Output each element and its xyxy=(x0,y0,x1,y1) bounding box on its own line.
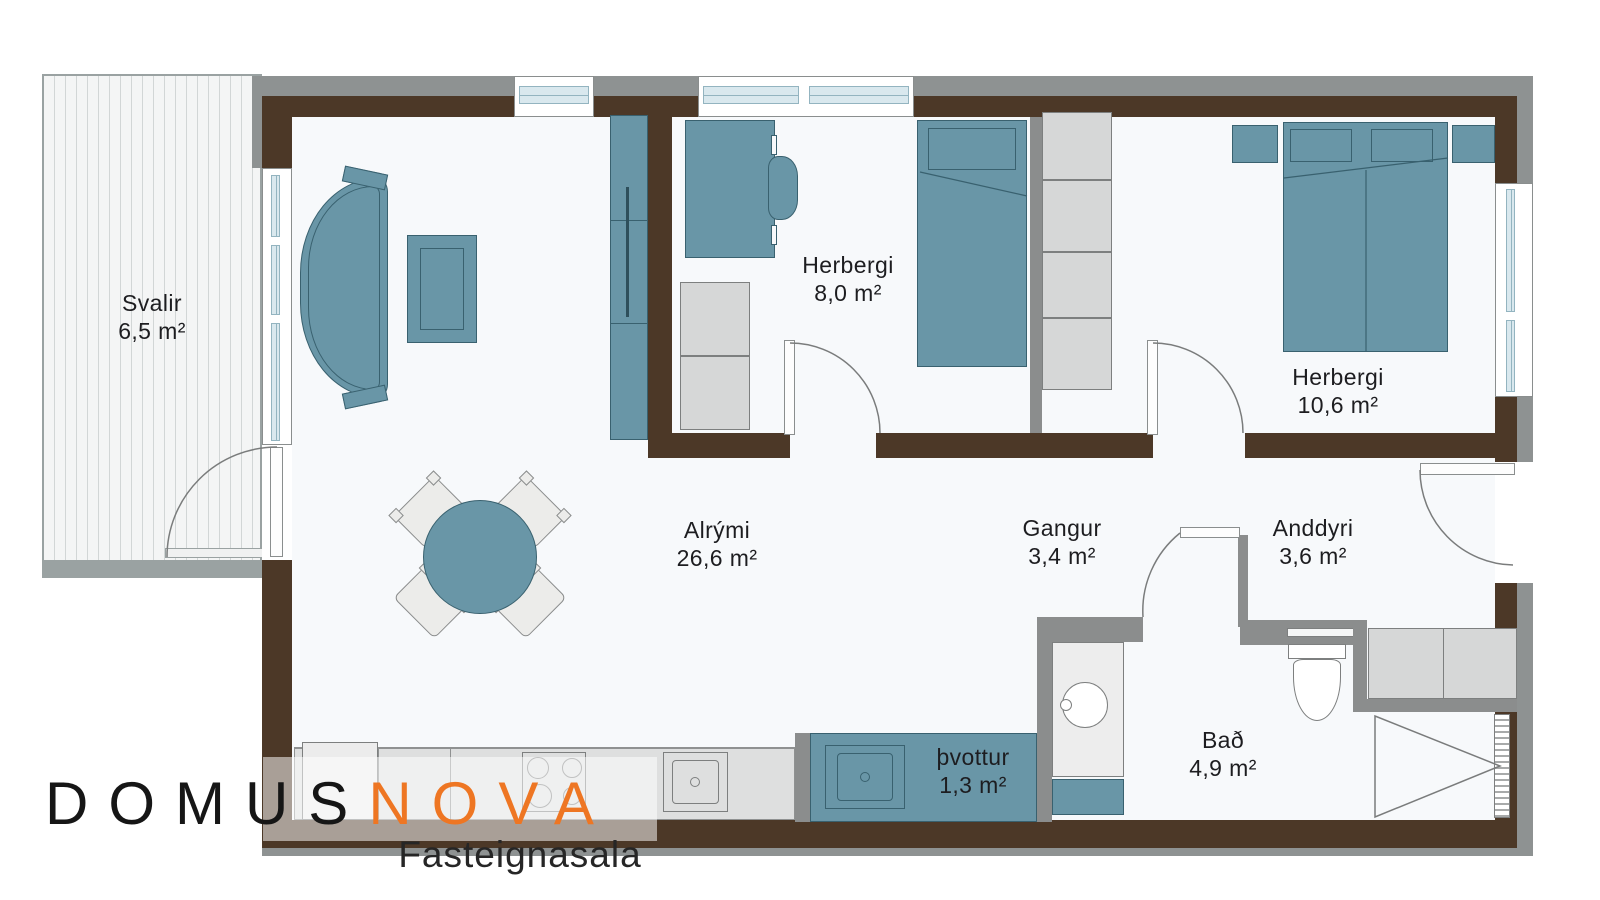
room-label-alrymi: Alrými 26,6 m² xyxy=(627,516,807,572)
balcony-edge xyxy=(42,562,292,578)
washbasin-faucet xyxy=(1060,699,1072,711)
brand-tagline: Fasteignasala xyxy=(385,834,655,876)
closet-icon xyxy=(1042,252,1112,318)
room-label-herbergi-large: Herbergi 10,6 m² xyxy=(1248,363,1428,419)
room-name: Anddyri xyxy=(1223,514,1403,542)
wall-laundry-left xyxy=(795,733,810,822)
window-icon xyxy=(1495,183,1533,397)
room-label-bad: Bað 4,9 m² xyxy=(1133,726,1313,782)
sink-drain xyxy=(690,777,700,787)
cabinet-icon xyxy=(680,282,750,356)
bedroom2-door-icon xyxy=(1147,340,1158,435)
pillow xyxy=(928,128,1016,170)
coffee-table-icon xyxy=(407,235,477,343)
balcony-door-icon xyxy=(270,447,283,557)
floor-plan: Svalir 6,5 m² Herbergi 8,0 m² Herbergi 1… xyxy=(0,0,1600,900)
closet-icon xyxy=(1042,112,1112,180)
closet-icon xyxy=(1042,318,1112,390)
room-name: Gangur xyxy=(972,514,1152,542)
cabinet-icon xyxy=(680,356,750,430)
wall-bedrooms-b xyxy=(876,433,1153,458)
room-area: 26,6 m² xyxy=(627,544,807,572)
room-area: 3,4 m² xyxy=(972,542,1152,570)
tall-cabinet-divider xyxy=(610,220,648,221)
room-area: 4,9 m² xyxy=(1133,754,1313,782)
window-icon xyxy=(698,76,914,117)
desk-detail xyxy=(771,225,777,245)
room-label-anddyri: Anddyri 3,6 m² xyxy=(1223,514,1403,570)
room-name: Bað xyxy=(1133,726,1313,754)
room-label-herbergi-small: Herbergi 8,0 m² xyxy=(758,251,938,307)
entry-door-icon xyxy=(1420,463,1515,475)
window-icon xyxy=(262,168,292,445)
wall-anddyri-bath xyxy=(1360,699,1517,712)
outer-edge-left xyxy=(252,76,262,168)
balcony-door-threshold xyxy=(165,548,269,558)
wall-right-upper xyxy=(1495,96,1517,183)
room-name: Alrými xyxy=(627,516,807,544)
brand-logo: DOMUSNOVA xyxy=(45,776,614,832)
room-name: þvottur xyxy=(883,743,1063,771)
toilet-cistern xyxy=(1288,644,1346,659)
pillow xyxy=(1290,129,1352,162)
room-name: Svalir xyxy=(62,289,242,317)
cabinet-handle xyxy=(626,187,629,317)
wall-bath-top-left xyxy=(1037,617,1143,642)
wall-bedrooms-c xyxy=(1245,433,1517,458)
tall-cabinet-icon xyxy=(610,115,648,440)
pillow xyxy=(1371,129,1433,162)
nightstand-icon xyxy=(1452,125,1495,163)
desk-chair-icon xyxy=(768,156,798,220)
desk-detail xyxy=(771,135,777,155)
toilet-shelf xyxy=(1287,628,1357,637)
closet-icon xyxy=(1042,180,1112,252)
window-icon xyxy=(514,76,594,117)
brand-nova: NOVA xyxy=(368,770,614,837)
laundry-sink-drain xyxy=(860,772,870,782)
room-name: Herbergi xyxy=(1248,363,1428,391)
wall-livingroom-bedroom1 xyxy=(648,117,672,458)
room-area: 1,3 m² xyxy=(883,771,1063,799)
room-name: Herbergi xyxy=(758,251,938,279)
desk-icon xyxy=(685,120,775,258)
room-area: 8,0 m² xyxy=(758,279,938,307)
entry-door-opening xyxy=(1495,462,1533,583)
nightstand-icon xyxy=(1232,125,1278,163)
wall-bedrooms-a xyxy=(648,433,790,458)
room-label-svalir: Svalir 6,5 m² xyxy=(62,289,242,345)
wall-closet xyxy=(1030,117,1042,433)
tall-cabinet-divider xyxy=(610,323,648,324)
room-area: 10,6 m² xyxy=(1248,391,1428,419)
room-area: 3,6 m² xyxy=(1223,542,1403,570)
shower-drain xyxy=(1494,714,1510,818)
bench-divider xyxy=(1443,628,1444,699)
dining-table-icon xyxy=(423,500,537,614)
room-label-thvottur: þvottur 1,3 m² xyxy=(883,743,1063,799)
wall-left-upper xyxy=(262,96,292,168)
bedroom1-door-icon xyxy=(784,340,795,435)
brand-domus: DOMUS xyxy=(45,770,368,837)
room-label-gangur: Gangur 3,4 m² xyxy=(972,514,1152,570)
room-area: 6,5 m² xyxy=(62,317,242,345)
